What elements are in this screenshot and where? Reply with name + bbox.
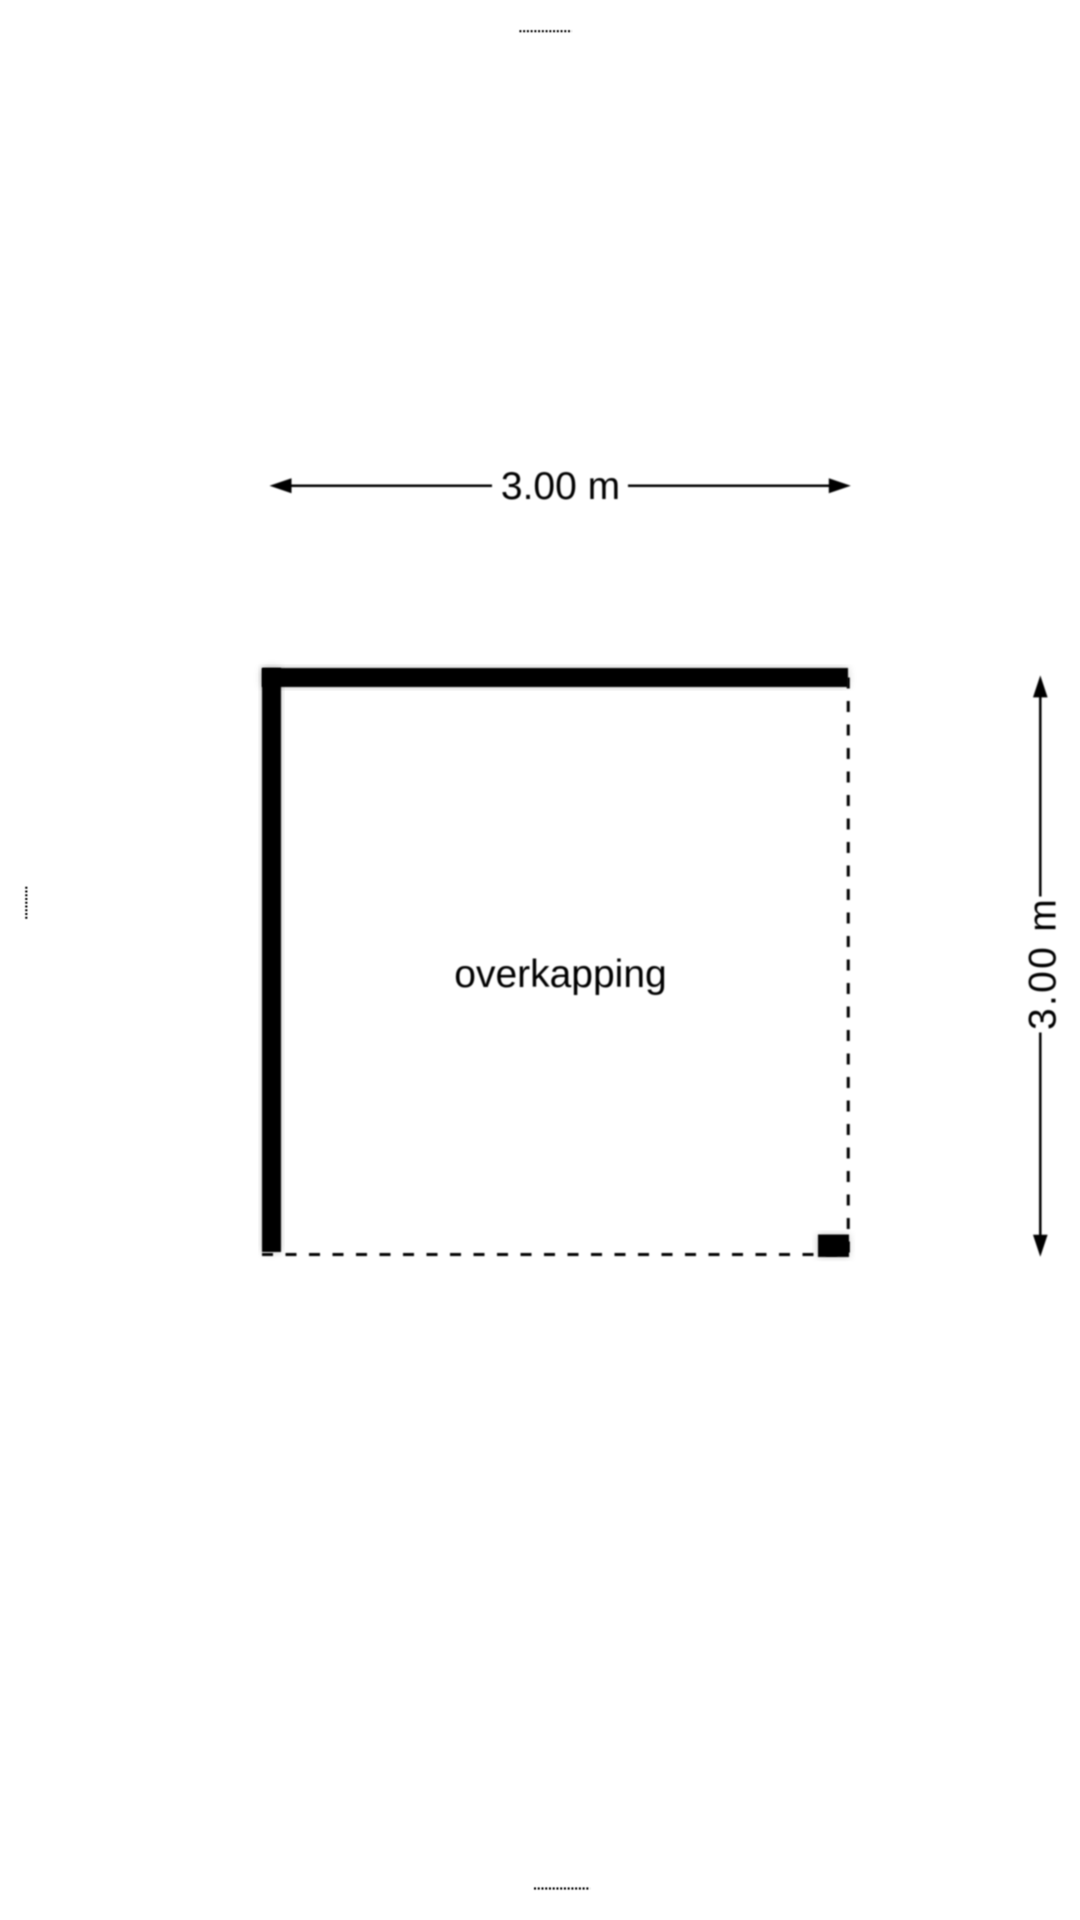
svg-text:3.00 m: 3.00 m xyxy=(1022,897,1065,1030)
svg-text:3.00 m: 3.00 m xyxy=(501,465,620,508)
svg-text:overkapping: overkapping xyxy=(454,953,666,996)
